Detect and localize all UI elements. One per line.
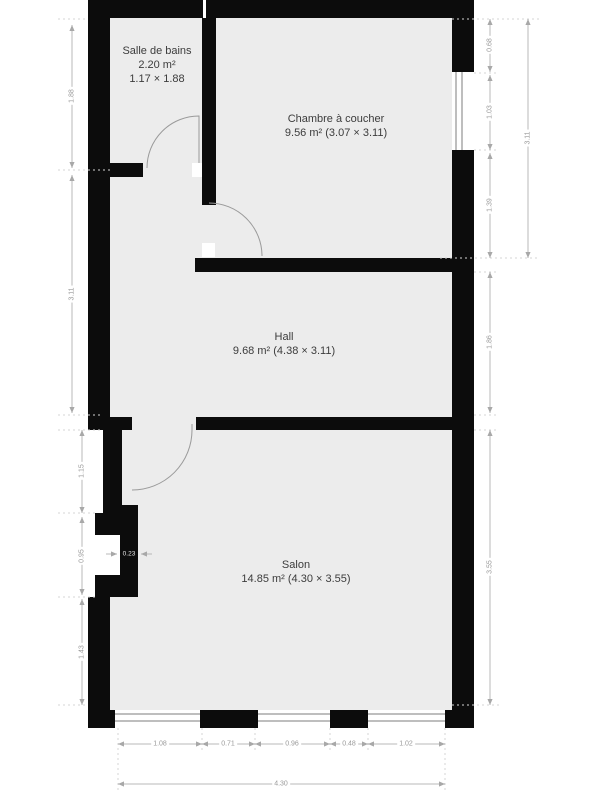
chambre-door-arc [209,203,262,256]
dim-left-4: 0.95 [79,547,86,565]
dim-right-1: 0.68 [487,36,494,54]
room-area: 2.20 m² [77,58,237,72]
dim-bottom-2: 0.71 [219,741,237,748]
room-dims: 1.17 × 1.88 [77,72,237,86]
bath-door-arc [147,116,199,168]
room-label-chambre: Chambre à coucher 9.56 m² (3.07 × 3.11) [216,112,456,140]
room-label-salle-de-bains: Salle de bains 2.20 m² 1.17 × 1.88 [77,44,237,86]
dim-right-3: 1.39 [487,196,494,214]
dim-right-total: 3.11 [525,129,532,146]
room-label-hall: Hall 9.68 m² (4.38 × 3.11) [164,330,404,358]
room-area-dims: 9.56 m² (3.07 × 3.11) [216,126,456,140]
dim-left-2: 3.11 [69,285,76,302]
room-name: Chambre à coucher [216,112,456,126]
dim-right-2: 1.03 [487,103,494,121]
dim-bottom-5: 1.02 [397,741,415,748]
dim-right-4: 1.86 [487,333,494,351]
room-name: Hall [164,330,404,344]
dim-bottom-total: 4.30 [272,781,290,788]
dim-wall-step: 0.23 [123,551,136,558]
floorplan-canvas: Salle de bains 2.20 m² 1.17 × 1.88 Chamb… [0,0,600,800]
room-area-dims: 9.68 m² (4.38 × 3.11) [164,344,404,358]
dim-left-5: 1.43 [79,643,86,661]
room-area-dims: 14.85 m² (4.30 × 3.55) [176,572,416,586]
salon-door-arc [132,424,192,490]
dim-bottom-1: 1.08 [151,741,169,748]
dim-bottom-4: 0.48 [340,741,358,748]
dim-bottom-3: 0.96 [283,741,301,748]
dim-left-3: 1.15 [79,462,86,480]
room-label-salon: Salon 14.85 m² (4.30 × 3.55) [176,558,416,586]
dim-right-5: 3.55 [487,558,494,576]
room-name: Salon [176,558,416,572]
room-name: Salle de bains [77,44,237,58]
dim-left-1: 1.88 [69,87,76,105]
